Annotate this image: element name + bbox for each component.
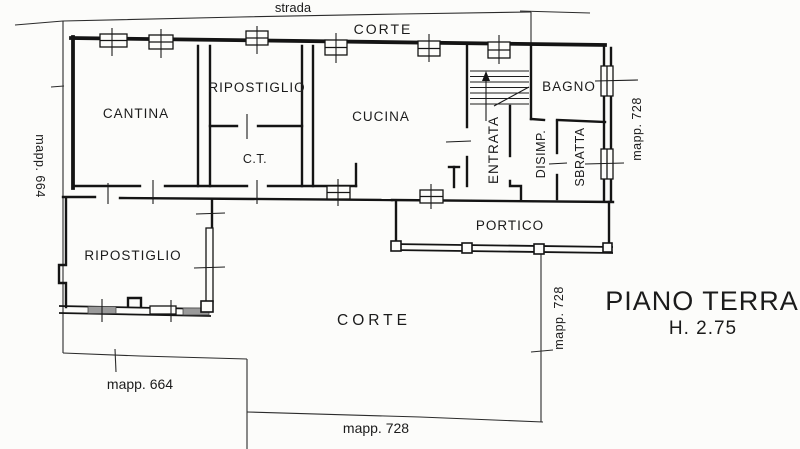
strada-label: strada: [275, 0, 312, 15]
mapp-664-bottom-label: mapp. 664: [107, 376, 173, 392]
mapp-664-left-label: mapp. 664: [33, 134, 47, 198]
room-label-sbratta: SBRATTA: [573, 127, 587, 186]
ripostiglio-corner-pier: [201, 301, 213, 312]
room-label-bagno: BAGNO: [542, 79, 596, 94]
bottom-left-parcel-line: [63, 353, 247, 359]
room-label-entrata: ENTRATA: [486, 116, 501, 184]
interior-walls: [59, 45, 613, 307]
corte-bottom-label: CORTE: [337, 312, 411, 329]
corte-top-label: CORTE: [354, 21, 413, 37]
strada-boundary-line: [15, 12, 531, 25]
room-label-ripostiglio-bottom: RIPOSTIGLIO: [84, 248, 181, 263]
room-label-ripostiglio-top: RIPOSTIGLIO: [208, 80, 305, 95]
window-ripostiglio-bottom-south: [150, 306, 176, 314]
mapp-728-right-label: mapp. 728: [630, 97, 644, 161]
pillar-4: [603, 243, 612, 252]
staircase: [470, 71, 529, 121]
room-label-disimp: DISIMP.: [534, 130, 548, 178]
mapp-728-bottom-label: mapp. 728: [343, 420, 409, 436]
room-label-ct: C.T.: [243, 152, 267, 166]
room-label-portico: PORTICO: [476, 218, 544, 233]
right-parcel-tick: [531, 350, 553, 352]
pillar-1: [391, 241, 401, 251]
pillar-2: [462, 243, 472, 253]
bottom-left-parcel-tick: [115, 349, 116, 372]
floor-plan-drawing: strada CORTE CANTINA RIPOSTIGLIO C.T. CU…: [0, 0, 800, 449]
room-label-cucina: CUCINA: [352, 109, 410, 124]
plan-title: PIANO TERRA: [605, 286, 799, 316]
left-parcel-tick: [51, 86, 64, 87]
window-ripostiglio-bottom-east: [206, 228, 213, 302]
floor-plan-page: strada CORTE CANTINA RIPOSTIGLIO C.T. CU…: [0, 0, 800, 449]
pillar-3: [534, 244, 544, 254]
plan-height-note: H. 2.75: [669, 318, 737, 339]
room-label-cantina: CANTINA: [103, 106, 169, 121]
stair-cut-line: [494, 87, 529, 106]
mapp-728-center-label: mapp. 728: [552, 286, 566, 350]
